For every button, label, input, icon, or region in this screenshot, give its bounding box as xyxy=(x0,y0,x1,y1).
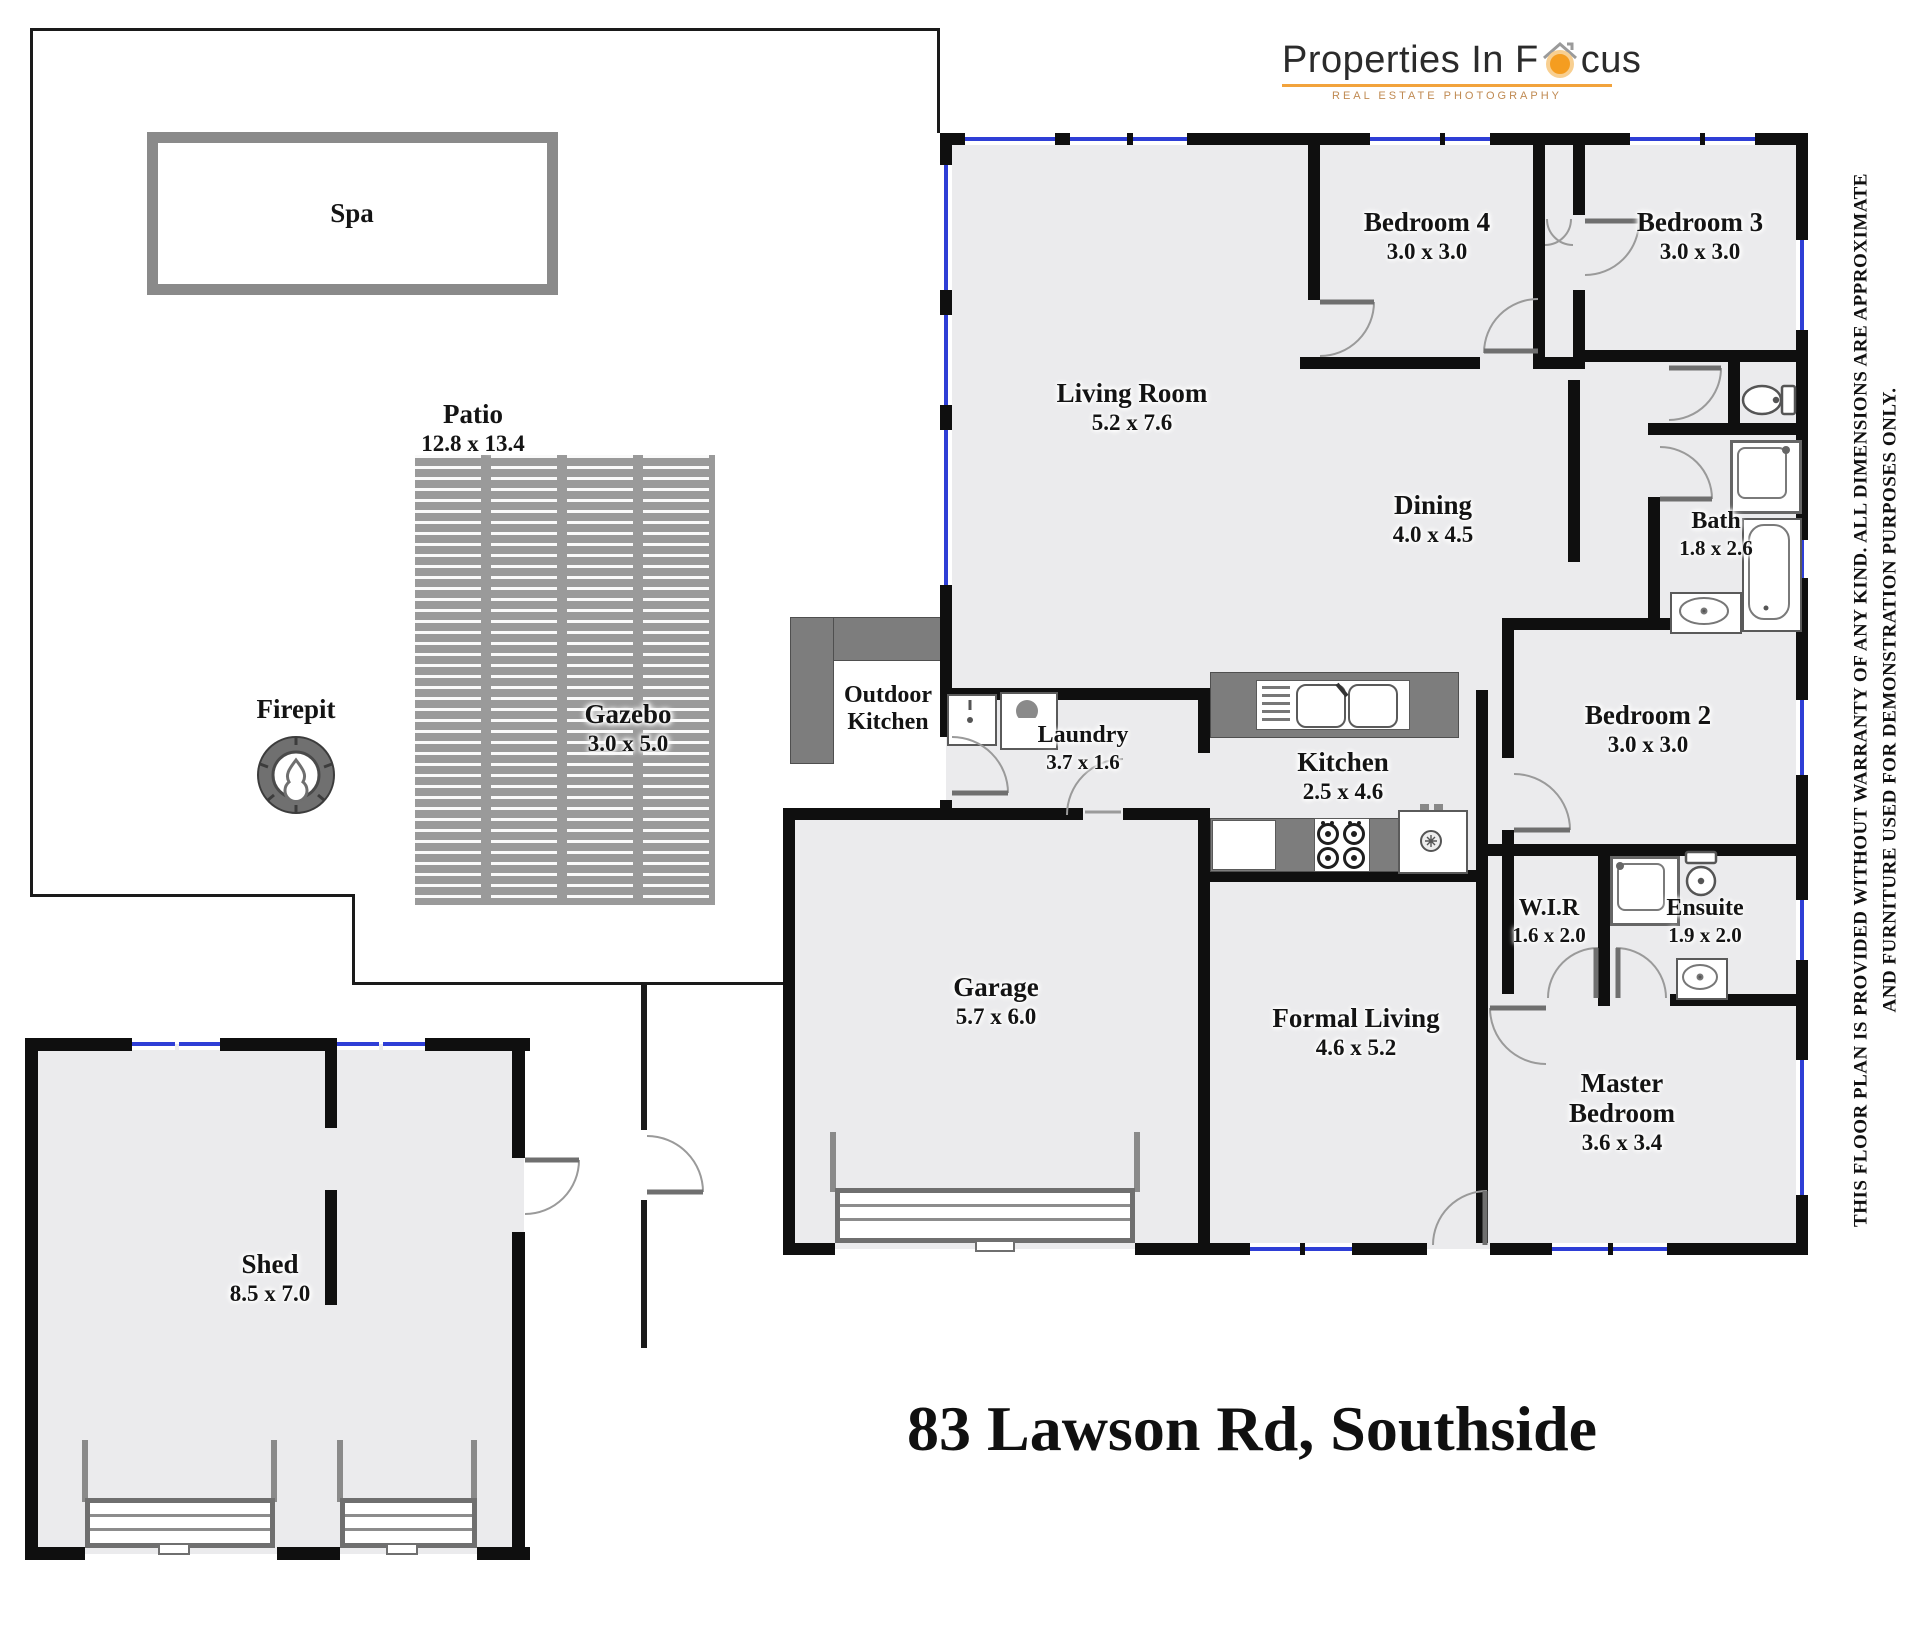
disclaimer-text: THIS FLOOR PLAN IS PROVIDED WITHOUT WARR… xyxy=(1847,120,1906,1280)
island-drainer xyxy=(1262,686,1290,722)
stove xyxy=(1314,818,1370,872)
firepit-icon xyxy=(258,737,334,813)
floor-plan-canvas: Spa Patio12.8 x 13.4 Firepit Gazebo3.0 x… xyxy=(0,0,1920,1628)
logo-text-post: cus xyxy=(1581,39,1642,82)
room-label-spa: Spa xyxy=(330,198,374,228)
room-label-bedroom3: Bedroom 33.0 x 3.0 xyxy=(1637,207,1763,265)
logo-text-pre: Properties In F xyxy=(1282,39,1539,82)
room-label-master: Master Bedroom3.6 x 3.4 xyxy=(1540,1068,1705,1156)
room-label-formal-living: Formal Living4.6 x 5.2 xyxy=(1272,1003,1439,1061)
room-label-bedroom2: Bedroom 23.0 x 3.0 xyxy=(1585,700,1711,758)
ensuite-shower-tray xyxy=(1617,863,1665,911)
dishwasher xyxy=(1212,820,1276,870)
bathtub-inner xyxy=(1748,524,1790,620)
disclaimer-line-2: AND FURNITURE USED FOR DEMONSTRATION PUR… xyxy=(1876,120,1905,1280)
page-title: 83 Lawson Rd, Southside xyxy=(907,1392,1597,1466)
logo-underline xyxy=(1282,84,1612,87)
garage-floor xyxy=(789,814,1204,1249)
room-label-ensuite: Ensuite1.9 x 2.0 xyxy=(1666,895,1743,947)
logo-tagline: REAL ESTATE PHOTOGRAPHY xyxy=(1282,90,1612,102)
laundry-sink xyxy=(947,694,997,746)
room-label-living: Living Room5.2 x 7.6 xyxy=(1057,378,1208,436)
bath-vanity xyxy=(1670,592,1742,634)
logo-text: Properties In F cus xyxy=(1282,38,1612,82)
room-label-wir: W.I.R1.6 x 2.0 xyxy=(1512,895,1586,947)
room-label-firepit: Firepit xyxy=(257,694,336,724)
room-label-bath: Bath1.8 x 2.6 xyxy=(1679,508,1753,560)
ensuite-vanity xyxy=(1676,958,1728,1000)
room-label-gazebo: Gazebo3.0 x 5.0 xyxy=(585,699,672,757)
room-label-outdoor-kitchen: Outdoor Kitchen xyxy=(828,682,948,736)
room-label-kitchen: Kitchen2.5 x 4.6 xyxy=(1297,747,1389,805)
room-label-bedroom4: Bedroom 43.0 x 3.0 xyxy=(1364,207,1490,265)
logo: Properties In F cus REAL ESTATE PHOTOGRA… xyxy=(1282,38,1612,102)
room-label-garage: Garage5.7 x 6.0 xyxy=(953,972,1038,1030)
fridge xyxy=(1398,810,1468,874)
room-label-shed: Shed8.5 x 7.0 xyxy=(230,1249,311,1307)
island-sink-bowl-left xyxy=(1296,684,1346,728)
island-sink-bowl-right xyxy=(1348,684,1398,728)
room-label-dining: Dining4.0 x 4.5 xyxy=(1393,490,1474,548)
room-label-laundry: Laundry3.7 x 1.6 xyxy=(1038,722,1129,774)
room-label-patio: Patio12.8 x 13.4 xyxy=(421,399,525,457)
disclaimer-line-1: THIS FLOOR PLAN IS PROVIDED WITHOUT WARR… xyxy=(1847,120,1876,1280)
logo-focus-icon xyxy=(1540,38,1580,82)
gazebo-decking xyxy=(415,455,715,905)
bath-shower-tray xyxy=(1737,447,1787,499)
